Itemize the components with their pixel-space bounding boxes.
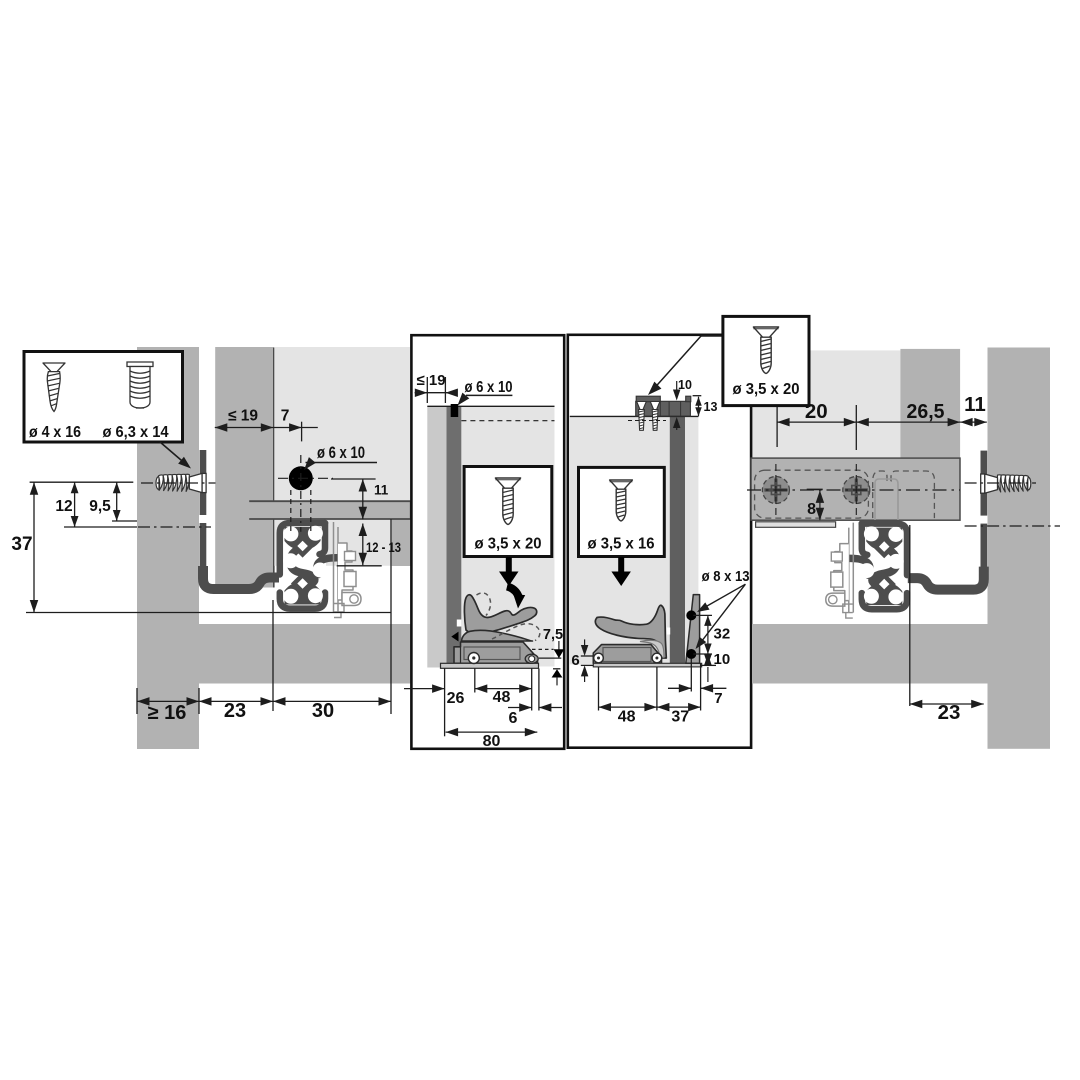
svg-text:23: 23 [224, 700, 246, 722]
svg-text:32: 32 [714, 626, 731, 643]
svg-text:48: 48 [493, 689, 511, 706]
svg-text:8: 8 [807, 501, 816, 518]
svg-text:7: 7 [281, 408, 290, 425]
svg-text:11: 11 [964, 393, 986, 416]
svg-text:23: 23 [938, 701, 961, 724]
svg-text:11: 11 [374, 483, 389, 498]
svg-text:ø 6 x 10: ø 6 x 10 [317, 444, 365, 462]
svg-text:7: 7 [714, 690, 722, 707]
svg-text:ø 3,5 x 20: ø 3,5 x 20 [733, 381, 800, 398]
svg-text:ø 6 x 10: ø 6 x 10 [465, 379, 513, 396]
svg-text:ø 8 x 13: ø 8 x 13 [702, 568, 750, 585]
svg-text:9,5: 9,5 [89, 498, 111, 515]
svg-text:80: 80 [483, 733, 501, 750]
svg-text:ø 3,5 x 20: ø 3,5 x 20 [475, 536, 542, 553]
svg-text:10: 10 [714, 651, 731, 668]
svg-text:37: 37 [11, 534, 32, 555]
svg-text:≤ 19: ≤ 19 [228, 408, 258, 425]
svg-text:ø 4 x 16: ø 4 x 16 [29, 424, 81, 441]
svg-text:26,5: 26,5 [907, 400, 945, 423]
svg-text:ø 3,5 x 16: ø 3,5 x 16 [588, 536, 655, 553]
svg-text:30: 30 [312, 700, 334, 722]
svg-text:10: 10 [678, 378, 692, 392]
svg-text:6: 6 [509, 710, 518, 727]
svg-text:≥ 16: ≥ 16 [148, 702, 187, 724]
svg-text:26: 26 [447, 690, 465, 707]
svg-text:48: 48 [618, 709, 636, 726]
svg-text:ø 6,3 x 14: ø 6,3 x 14 [103, 424, 169, 441]
svg-text:13: 13 [704, 400, 718, 414]
svg-text:7,5: 7,5 [543, 627, 563, 643]
svg-text:6: 6 [571, 652, 579, 669]
svg-text:37: 37 [671, 709, 689, 726]
svg-text:12 - 13: 12 - 13 [366, 540, 401, 555]
svg-text:12: 12 [55, 498, 72, 515]
svg-text:≤ 19: ≤ 19 [416, 372, 445, 389]
